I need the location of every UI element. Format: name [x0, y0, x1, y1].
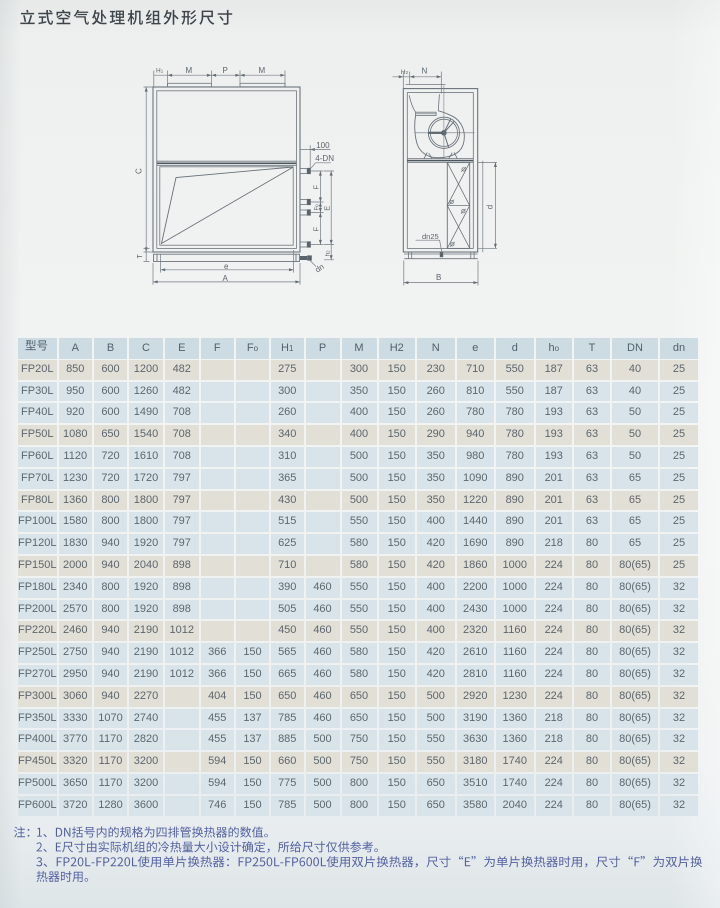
svg-text:N: N: [422, 66, 428, 75]
svg-text:H1: H1: [156, 68, 164, 75]
svg-text:B: B: [436, 273, 441, 282]
svg-text:A: A: [223, 274, 229, 283]
svg-text:F: F: [311, 185, 320, 190]
svg-text:dn: dn: [313, 262, 325, 274]
svg-text:dn25: dn25: [422, 232, 439, 241]
svg-text:P: P: [223, 66, 228, 75]
svg-text:e: e: [224, 262, 229, 271]
svg-text:4-DN: 4-DN: [315, 154, 334, 163]
svg-text:100: 100: [316, 141, 330, 150]
svg-text:M: M: [186, 66, 193, 75]
svg-text:T: T: [137, 254, 144, 259]
svg-text:M: M: [259, 66, 266, 75]
svg-text:E: E: [322, 206, 331, 211]
svg-text:h2: h2: [325, 250, 332, 257]
svg-text:d: d: [486, 205, 495, 209]
svg-text:F: F: [311, 227, 320, 232]
svg-text:H2: H2: [401, 69, 409, 76]
svg-text:C: C: [135, 168, 144, 174]
